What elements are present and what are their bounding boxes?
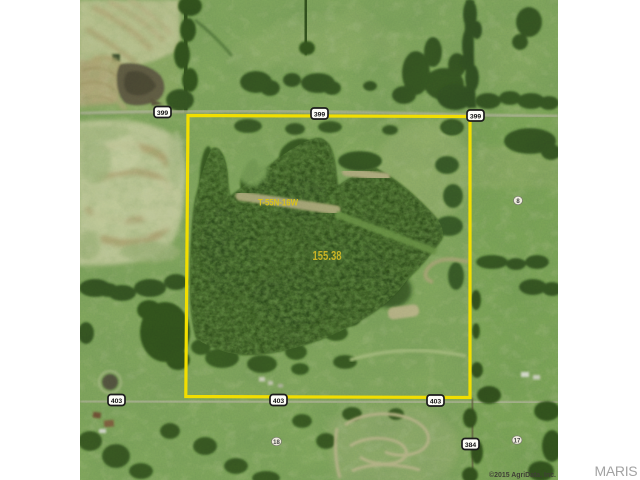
svg-text:17: 17 xyxy=(514,439,521,445)
svg-text:384: 384 xyxy=(465,442,477,449)
svg-text:T-55N-16W: T-55N-16W xyxy=(258,198,298,208)
svg-text:MARIS: MARIS xyxy=(595,463,638,479)
svg-text:©2015 AgriData, Inc.: ©2015 AgriData, Inc. xyxy=(489,471,556,479)
svg-text:403: 403 xyxy=(111,398,123,405)
svg-text:403: 403 xyxy=(430,399,442,406)
svg-text:155.38: 155.38 xyxy=(313,249,342,263)
svg-text:399: 399 xyxy=(470,114,482,121)
svg-text:399: 399 xyxy=(157,110,169,117)
svg-text:399: 399 xyxy=(314,112,326,119)
svg-text:403: 403 xyxy=(273,398,285,405)
svg-text:18: 18 xyxy=(273,440,280,446)
